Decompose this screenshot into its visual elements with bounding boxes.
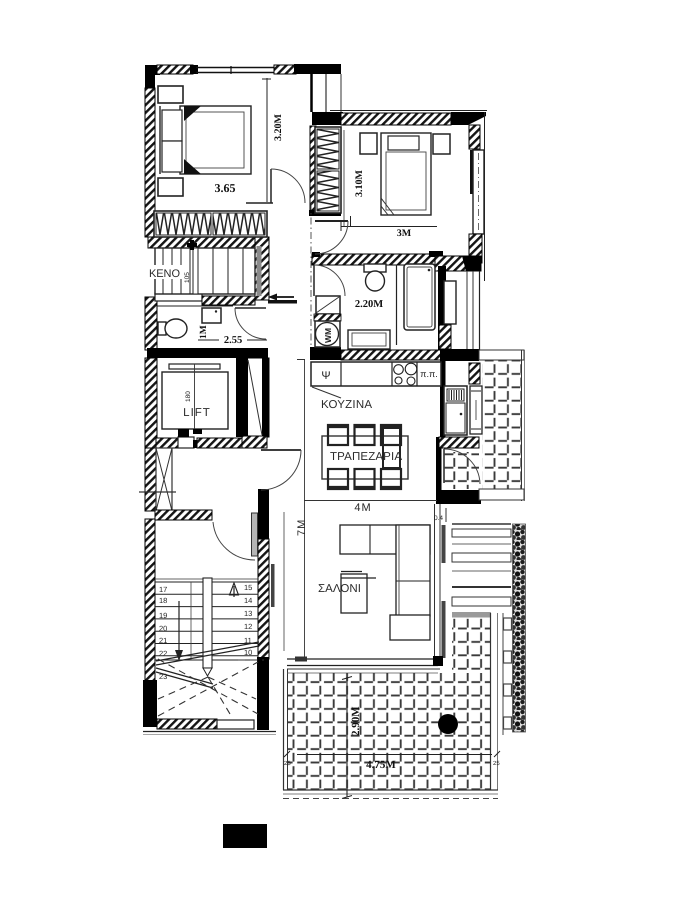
svg-text:14: 14 <box>244 596 252 605</box>
svg-text:105: 105 <box>184 272 191 283</box>
svg-text:12: 12 <box>244 622 252 631</box>
svg-text:LIFT: LIFT <box>183 407 211 419</box>
svg-text:3.20M: 3.20M <box>273 114 284 142</box>
svg-text:22: 22 <box>159 649 167 658</box>
svg-text:13: 13 <box>244 609 252 618</box>
svg-text:Ψ: Ψ <box>321 370 330 382</box>
svg-text:10: 10 <box>244 648 252 657</box>
svg-text:π.π.: π.π. <box>420 369 437 379</box>
svg-text:18: 18 <box>159 596 167 605</box>
svg-text:3.65: 3.65 <box>215 181 236 195</box>
svg-text:7M: 7M <box>296 519 308 536</box>
svg-text:2.90M: 2.90M <box>350 706 362 736</box>
svg-text:ΤΡΑΠΕΖΑΡΙΑ: ΤΡΑΠΕΖΑΡΙΑ <box>330 451 403 463</box>
svg-text:KENO: KENO <box>149 268 181 280</box>
svg-text:3M: 3M <box>397 228 412 239</box>
svg-text:20: 20 <box>159 624 167 633</box>
svg-text:25: 25 <box>493 760 500 767</box>
svg-text:15: 15 <box>244 583 252 592</box>
svg-text:180: 180 <box>185 391 192 402</box>
svg-text:2.20M: 2.20M <box>355 299 383 310</box>
svg-text:3.10M: 3.10M <box>354 170 365 198</box>
svg-text:4.75M: 4.75M <box>366 759 396 771</box>
svg-text:19: 19 <box>159 611 167 620</box>
svg-text:2.55: 2.55 <box>224 335 242 346</box>
svg-text:ΚΟΥΖΙΝΑ: ΚΟΥΖΙΝΑ <box>321 399 373 411</box>
svg-text:WM: WM <box>323 328 333 343</box>
svg-text:ΣΑΛΟΝΙ: ΣΑΛΟΝΙ <box>318 583 362 595</box>
svg-text:0.4: 0.4 <box>434 515 443 522</box>
svg-text:4M: 4M <box>354 502 371 514</box>
svg-text:1M: 1M <box>199 325 209 339</box>
svg-text:25: 25 <box>284 760 291 767</box>
svg-text:17: 17 <box>159 585 167 594</box>
svg-text:21: 21 <box>159 636 167 645</box>
